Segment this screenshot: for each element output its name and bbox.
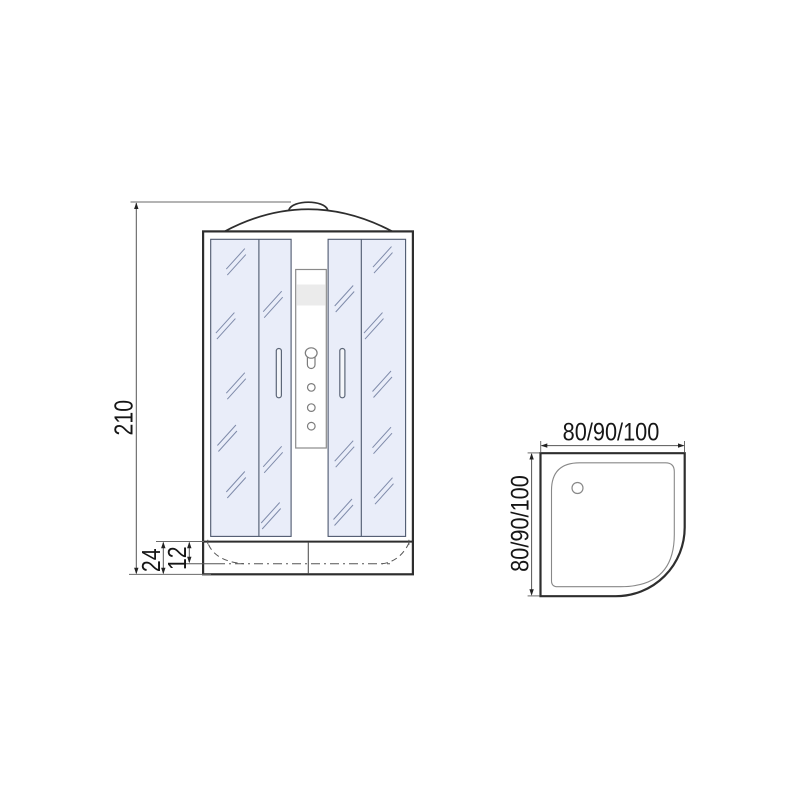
- svg-text:210: 210: [110, 400, 140, 436]
- svg-text:24: 24: [137, 548, 167, 572]
- svg-text:80/90/100: 80/90/100: [563, 418, 660, 446]
- svg-text:80/90/100: 80/90/100: [506, 475, 534, 572]
- svg-text:12: 12: [163, 546, 193, 570]
